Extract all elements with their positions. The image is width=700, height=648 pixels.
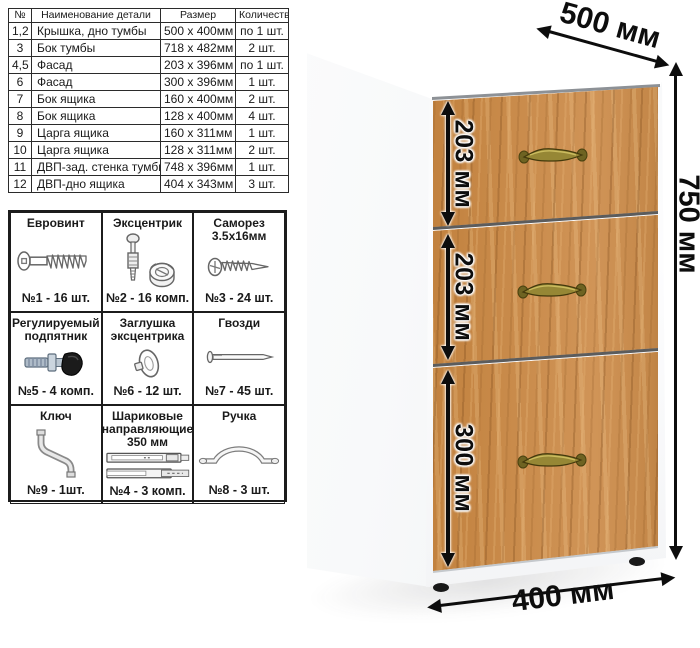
parts-cell-size: 160 x 400мм	[161, 91, 236, 108]
parts-cell-qty: 1 шт.	[236, 74, 289, 91]
self-tapping-screw-icon	[196, 243, 282, 291]
parts-table: №Наименование деталиРазмерКоличество 1,2…	[8, 8, 289, 193]
parts-header-col-2: Размер	[161, 9, 236, 23]
euro-screw-icon	[13, 230, 99, 291]
hardware-item-title: Гвозди	[218, 317, 260, 330]
hardware-item-qty: №8 - 3 шт.	[208, 483, 269, 497]
parts-cell-num: 12	[9, 176, 32, 193]
parts-cell-num: 10	[9, 142, 32, 159]
hardware-item-adjustable-foot: Регулируемый подпятник №5 - 4 комп.	[10, 312, 102, 405]
parts-table-row: 4,5Фасад203 x 396ммпо 1 шт.	[9, 57, 289, 74]
parts-cell-qty: по 1 шт.	[236, 57, 289, 74]
parts-cell-size: 203 x 396мм	[161, 57, 236, 74]
assembly-instruction-sheet: №Наименование деталиРазмерКоличество 1,2…	[0, 0, 700, 648]
drawer3-height-label: 300 мм	[449, 424, 478, 513]
hardware-item-ball-slides: Шариковые направляющие 350 мм №4 - 3 ком…	[102, 405, 194, 504]
parts-cell-name: Бок ящика	[32, 108, 161, 125]
parts-cell-name: ДВП-зад. стенка тумбы	[32, 159, 161, 176]
hardware-item-qty: №9 - 1шт.	[27, 483, 85, 497]
parts-header-col-0: №	[9, 9, 32, 23]
parts-table-row: 9Царга ящика160 x 311мм1 шт.	[9, 125, 289, 142]
parts-cell-name: Фасад	[32, 74, 161, 91]
parts-cell-qty: 4 шт.	[236, 108, 289, 125]
adjustable-foot-icon	[13, 343, 99, 384]
hardware-item-title: Ручка	[222, 410, 256, 423]
hardware-item-nail: Гвозди №7 - 45 шт.	[193, 312, 285, 405]
parts-cell-name: Царга ящика	[32, 142, 161, 159]
drawer-handle-icon	[517, 451, 587, 471]
hardware-item-qty: №6 - 12 шт.	[113, 384, 181, 398]
parts-cell-size: 128 x 400мм	[161, 108, 236, 125]
parts-table-row: 3Бок тумбы718 x 482мм2 шт.	[9, 40, 289, 57]
hardware-item-qty: №7 - 45 шт.	[205, 384, 273, 398]
parts-cell-qty: 3 шт.	[236, 176, 289, 193]
parts-cell-size: 500 x 400мм	[161, 23, 236, 40]
parts-header-col-1: Наименование детали	[32, 9, 161, 23]
parts-cell-num: 7	[9, 91, 32, 108]
nail-icon	[196, 330, 282, 384]
parts-cell-size: 160 x 311мм	[161, 125, 236, 142]
parts-cell-name: Фасад	[32, 57, 161, 74]
key-icon	[13, 423, 99, 483]
parts-cell-size: 718 x 482мм	[161, 40, 236, 57]
drawer1-height-label: 203 мм	[449, 120, 478, 209]
parts-header-col-3: Количество	[236, 9, 289, 23]
parts-cell-qty: 2 шт.	[236, 40, 289, 57]
hardware-item-title: Заглушка эксцентрика	[105, 317, 191, 343]
parts-cell-qty: 2 шт.	[236, 142, 289, 159]
hardware-item-title: Шариковые направляющие 350 мм	[102, 410, 193, 450]
parts-cell-name: Бок тумбы	[32, 40, 161, 57]
hardware-item-title: Регулируемый подпятник	[12, 317, 100, 343]
hardware-item-title: Эксцентрик	[113, 217, 182, 230]
parts-cell-num: 3	[9, 40, 32, 57]
handle-icon	[196, 423, 282, 483]
parts-cell-num: 9	[9, 125, 32, 142]
parts-cell-size: 128 x 311мм	[161, 142, 236, 159]
parts-table-row: 11ДВП-зад. стенка тумбы748 x 396мм1 шт.	[9, 159, 289, 176]
parts-table-row: 12ДВП-дно ящика404 x 343мм3 шт.	[9, 176, 289, 193]
cam-cover-icon	[105, 343, 191, 384]
hardware-item-qty: №4 - 3 комп.	[109, 484, 185, 498]
parts-cell-name: Бок ящика	[32, 91, 161, 108]
hardware-grid: Евровинт №1 - 16 шт.Эксцентрик №2 - 16 к…	[8, 210, 287, 502]
parts-table-row: 7Бок ящика160 x 400мм2 шт.	[9, 91, 289, 108]
drawer2-height-label: 203 мм	[449, 253, 478, 342]
parts-cell-qty: по 1 шт.	[236, 23, 289, 40]
parts-cell-num: 1,2	[9, 23, 32, 40]
hardware-item-title: Ключ	[40, 410, 72, 423]
hardware-item-qty: №3 - 24 шт.	[205, 291, 273, 305]
height-dimension-arrow	[674, 75, 677, 547]
drawer-handle-icon	[518, 146, 588, 166]
hardware-item-qty: №2 - 16 комп.	[106, 291, 189, 305]
parts-cell-num: 11	[9, 159, 32, 176]
hardware-item-handle: Ручка №8 - 3 шт.	[193, 405, 285, 504]
parts-cell-num: 8	[9, 108, 32, 125]
parts-table-row: 6Фасад300 x 396мм1 шт.	[9, 74, 289, 91]
cabinet-foot-right	[629, 557, 645, 566]
parts-table-header: №Наименование деталиРазмерКоличество	[9, 9, 289, 23]
parts-cell-size: 404 x 343мм	[161, 176, 236, 193]
hardware-item-euro-screw: Евровинт №1 - 16 шт.	[10, 212, 102, 312]
parts-cell-qty: 1 шт.	[236, 125, 289, 142]
cam-lock-icon	[105, 230, 191, 291]
hardware-item-qty: №1 - 16 шт.	[22, 291, 90, 305]
hardware-item-cam-cover: Заглушка эксцентрика №6 - 12 шт.	[102, 312, 194, 405]
cabinet-foot-left	[433, 583, 449, 592]
hardware-item-cam-lock: Эксцентрик №2 - 16 комп.	[102, 212, 194, 312]
parts-table-row: 1,2Крышка, дно тумбы500 x 400ммпо 1 шт.	[9, 23, 289, 40]
parts-cell-qty: 2 шт.	[236, 91, 289, 108]
parts-cell-qty: 1 шт.	[236, 159, 289, 176]
parts-table-row: 8Бок ящика128 x 400мм4 шт.	[9, 108, 289, 125]
parts-cell-num: 6	[9, 74, 32, 91]
parts-cell-size: 748 x 396мм	[161, 159, 236, 176]
hardware-item-self-tapping-screw: Саморез 3.5х16мм №3 - 24 шт.	[193, 212, 285, 312]
hardware-item-qty: №5 - 4 комп.	[18, 384, 94, 398]
height-dimension-label: 750 мм	[672, 174, 700, 273]
hardware-item-title: Евровинт	[27, 217, 85, 230]
parts-cell-num: 4,5	[9, 57, 32, 74]
ball-slides-icon	[105, 450, 191, 484]
parts-cell-name: ДВП-дно ящика	[32, 176, 161, 193]
parts-cell-size: 300 x 396мм	[161, 74, 236, 91]
hardware-item-key: Ключ №9 - 1шт.	[10, 405, 102, 504]
parts-table-row: 10Царга ящика128 x 311мм2 шт.	[9, 142, 289, 159]
parts-cell-name: Крышка, дно тумбы	[32, 23, 161, 40]
drawer-handle-icon	[517, 281, 587, 301]
hardware-item-title: Саморез 3.5х16мм	[196, 217, 282, 243]
parts-cell-name: Царга ящика	[32, 125, 161, 142]
